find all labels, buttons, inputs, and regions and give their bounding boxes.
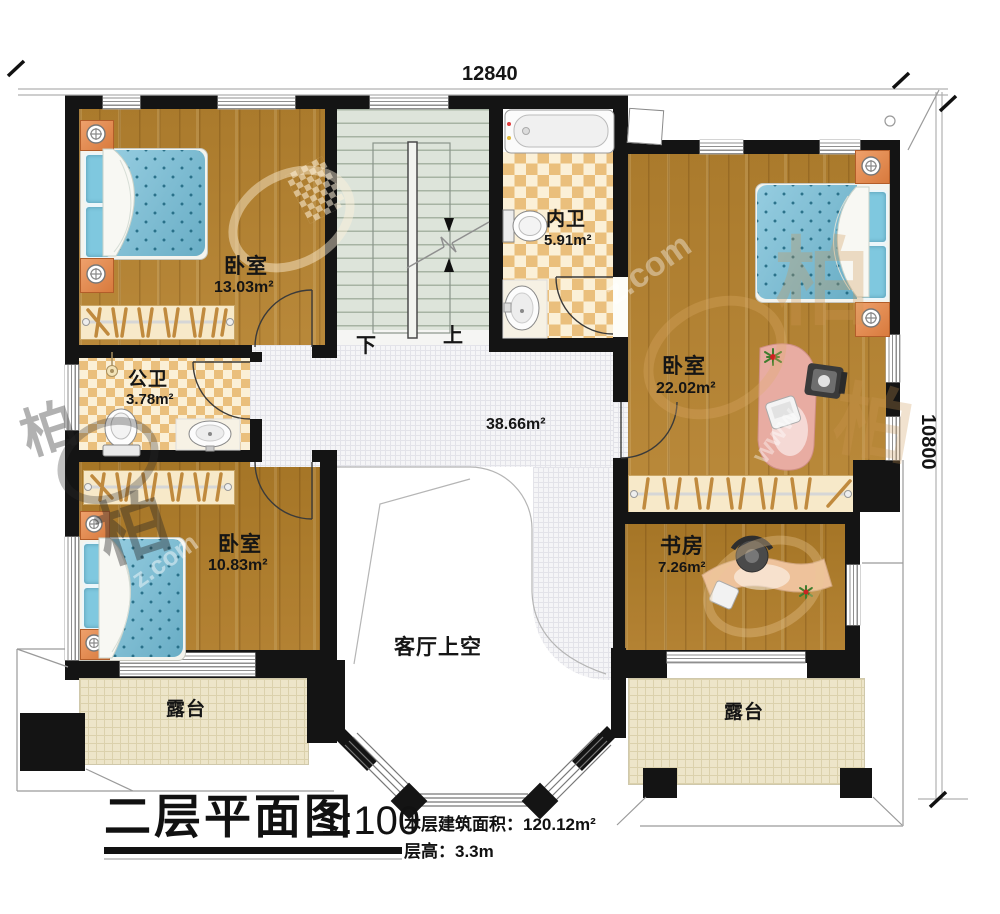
wall-bath-public-right-a: [250, 352, 262, 362]
wall-wardrobe-left: [613, 475, 628, 512]
window-bedroom-bl-left: [65, 537, 79, 660]
bed-top-left-pillow-2: [84, 205, 112, 259]
window-bath-public-left: [65, 365, 79, 430]
wall-bedroom-tl-bottom-b: [312, 345, 337, 358]
window-top-right-2: [820, 140, 860, 154]
label-stairs-down: 下: [356, 336, 376, 357]
wall-bedroom-bl-right: [320, 450, 337, 680]
wall-terrace-right-top: [807, 663, 860, 678]
wall-study-left: [613, 524, 625, 663]
wall-bedroom-tl-bottom-a: [65, 345, 252, 358]
wardrobe-bedroom-top-left: [80, 305, 235, 340]
label-bath-inner-name: 内卫: [546, 210, 586, 230]
wardrobe-bedroom-bottom-left: [83, 470, 235, 505]
label-bath-public-name: 公卫: [128, 370, 168, 390]
label-study-area: 7.26m²: [658, 560, 706, 576]
window-bedroom-tr-right-1: [886, 335, 900, 382]
label-study-name: 书房: [660, 536, 704, 558]
floor-plan-canvas: z.com z.com www 柏 柏 柏 柏 卧室 13.03m² 内卫 5.…: [0, 0, 1000, 914]
post-terrace-right-a: [643, 768, 677, 798]
wardrobe-bedroom-top-right: [628, 475, 855, 514]
bed-top-right-mattress: [757, 185, 857, 299]
wall-bath-public-bottom-a: [65, 450, 255, 462]
floor-study: [625, 524, 845, 651]
label-terrace-right: 露台: [724, 703, 764, 723]
label-bedroom-tl-name: 卧室: [224, 256, 268, 278]
window-study-bottom: [667, 652, 805, 663]
title-floor-height: 层高：3.3m: [404, 843, 494, 861]
label-living-void: 客厅上空: [394, 637, 482, 659]
window-top-2: [218, 95, 295, 109]
post-terrace-left: [20, 713, 85, 771]
nightstand: [80, 629, 110, 660]
bed-top-right-pillow-2: [858, 244, 888, 300]
nightstand: [855, 302, 890, 337]
label-bedroom-tr-name: 卧室: [662, 356, 706, 378]
nightstand: [80, 120, 114, 151]
wall-bath-public-right-b: [250, 419, 262, 462]
wall-bedroom-tr-left-c: [613, 458, 628, 475]
window-top-3: [370, 95, 448, 109]
post-terrace-right-b: [840, 768, 872, 798]
window-bedroom-tr-right-2: [886, 417, 900, 460]
wall-bedroom-tr-left-b: [613, 337, 628, 402]
dimension-right: 10800: [917, 414, 938, 470]
wall-bedroom-tr-left-a: [613, 109, 628, 277]
page-title: 二层平面图: [104, 792, 354, 841]
label-stairs-up: 上: [443, 326, 463, 347]
title-underline-thin: [104, 858, 402, 860]
wall-top-left: [65, 95, 625, 109]
bed-bottom-left-mattress: [106, 539, 183, 657]
wall-terrace-left-corner: [307, 678, 337, 743]
label-terrace-left: 露台: [166, 700, 206, 720]
bed-top-left-pillow-1: [84, 153, 112, 205]
window-top-1: [103, 95, 140, 109]
floor-hallway: [250, 345, 613, 467]
title-underline-thick: [104, 847, 402, 854]
floor-hallway-side: [533, 467, 613, 680]
label-bedroom-bl-area: 10.83m²: [208, 558, 268, 575]
floor-door-threshold: [613, 402, 628, 458]
window-top-right-1: [700, 140, 743, 154]
floor-ensuite-threshold: [613, 277, 628, 337]
nightstand: [855, 150, 890, 184]
bed-top-left-mattress: [110, 150, 205, 256]
label-bath-inner-area: 5.91m²: [544, 233, 592, 249]
window-study-right: [847, 565, 860, 625]
bed-bottom-left-pillow-1: [82, 542, 110, 586]
label-bedroom-tr-area: 22.02m²: [656, 381, 716, 398]
roof-chimney-box: [627, 108, 664, 145]
label-hall-area: 38.66m²: [486, 417, 546, 434]
bed-top-right-pillow-1: [858, 190, 888, 244]
floor-terrace-left: [79, 678, 309, 765]
wall-corner-right: [853, 460, 900, 512]
bed-bottom-left-pillow-2: [82, 586, 110, 630]
wall-stair-right: [489, 109, 503, 352]
dimension-top: 12840: [462, 64, 518, 85]
wall-terrace-right-top-b: [626, 663, 667, 678]
wall-bath-inner-bottom: [503, 338, 613, 352]
nightstand: [80, 511, 110, 540]
nightstand: [80, 258, 114, 293]
label-bedroom-tl-area: 13.03m²: [214, 280, 274, 297]
label-bedroom-bl-name: 卧室: [218, 534, 262, 556]
wall-stair-left: [325, 109, 337, 352]
title-area-text: 本层建筑面积：120.12m²: [404, 816, 596, 834]
label-bath-public-area: 3.78m²: [126, 392, 174, 408]
wall-study-top: [613, 512, 853, 524]
floor-stairwell: [337, 109, 489, 332]
